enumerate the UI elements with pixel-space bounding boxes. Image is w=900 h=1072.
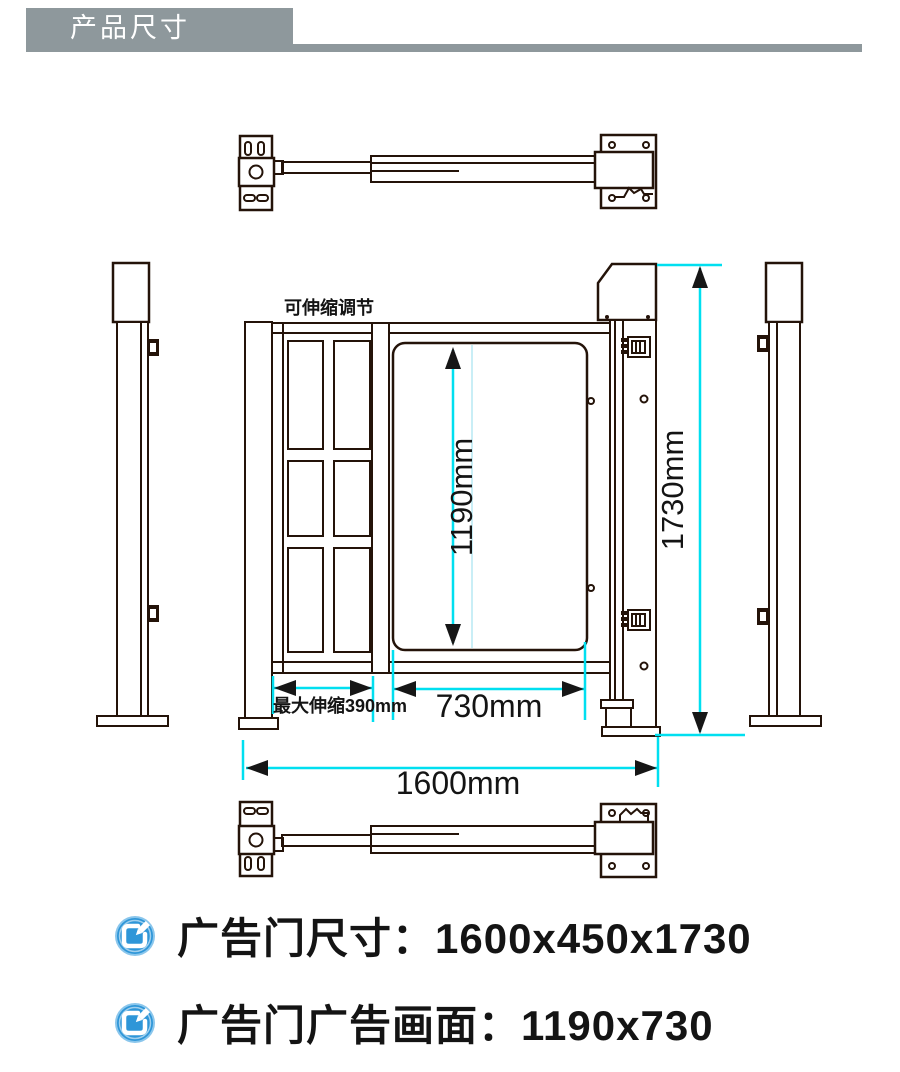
hinge-bottom xyxy=(621,610,650,630)
dimension-label-panel-height: 1190mm xyxy=(444,438,479,556)
right-pole-side-view xyxy=(750,263,821,726)
spec-ad-screen-size-text: 广告门广告画面：1190x730 xyxy=(177,992,714,1053)
spec-row-ad-screen-size: 广告门广告画面：1190x730 xyxy=(115,992,714,1053)
dimension-label-panel-width: 730mm xyxy=(436,688,543,724)
spec-gate-size-text: 广告门尺寸：1600x450x1730 xyxy=(177,905,752,966)
left-pole-side-view xyxy=(97,263,168,726)
edit-icon xyxy=(115,916,155,956)
dimension-label-total-height: 1730mm xyxy=(655,430,690,551)
top-view-drawing xyxy=(239,135,656,210)
advertising-panel xyxy=(393,343,587,650)
telescopic-note-label: 可伸缩调节 xyxy=(284,297,374,318)
dimension-label-max-extension: 最大伸缩390mm xyxy=(273,695,407,716)
bottom-view-drawing xyxy=(239,802,656,877)
hinge-top xyxy=(621,337,650,357)
machine-housing xyxy=(598,264,656,320)
edit-icon xyxy=(115,1003,155,1043)
spec-row-gate-size: 广告门尺寸：1600x450x1730 xyxy=(115,905,752,966)
dimension-label-total-width: 1600mm xyxy=(396,765,521,801)
